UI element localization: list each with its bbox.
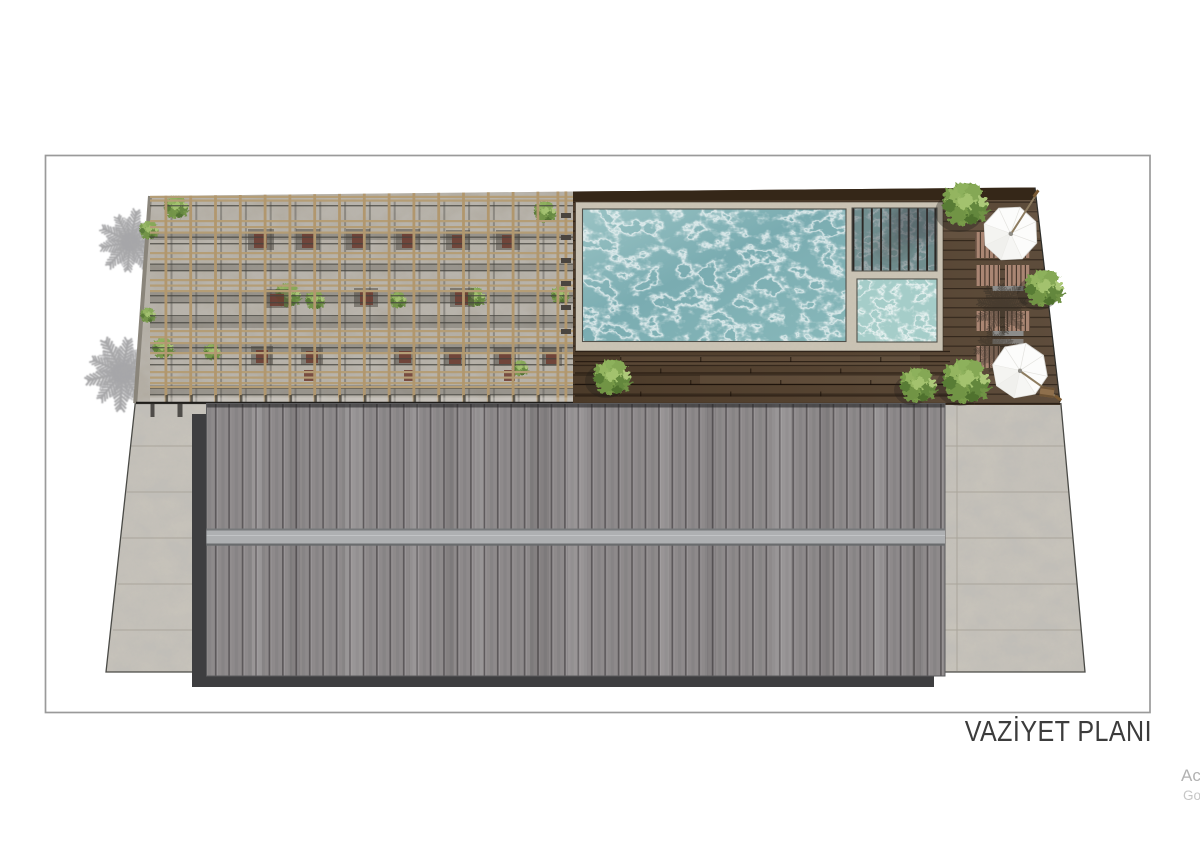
svg-text:Act: Act [1181,766,1200,785]
svg-text:VAZİYET PLANI: VAZİYET PLANI [965,714,1152,747]
svg-text:Go: Go [1183,788,1200,803]
